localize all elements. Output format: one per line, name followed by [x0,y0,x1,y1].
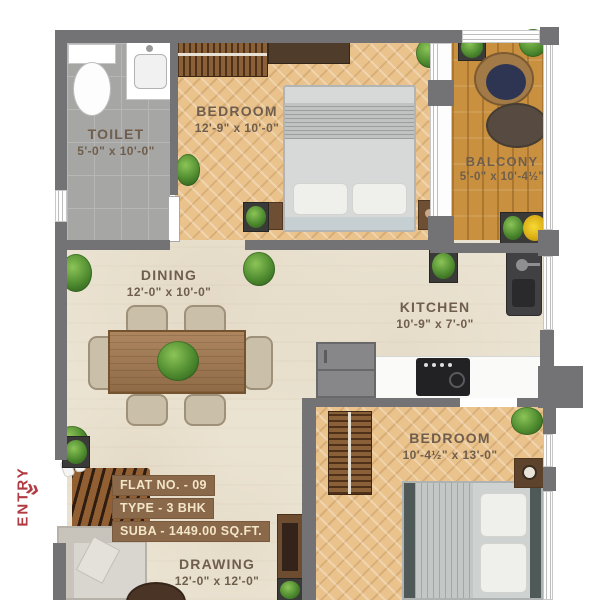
dining-name: DINING [110,267,228,283]
wall [540,330,554,366]
wall [543,467,556,491]
bed-headboard [530,483,541,598]
kitchen-name: KITCHEN [376,299,494,315]
wardrobe [328,411,372,495]
chair-cushion [486,64,526,100]
stove-hob [416,358,470,396]
balcony-name: BALCONY [448,154,556,169]
bedroom1-dims: 12'-9" x 10'-0" [163,121,311,135]
bed-pillow [352,183,407,215]
round-chair [474,52,534,106]
toilet-label: TOILET 5'-0" x 10'-0" [64,126,168,158]
bed-pillow [293,183,348,215]
refrigerator [316,342,376,398]
bed-blanket [415,483,473,598]
sliding-door [430,43,452,243]
wall [245,240,430,250]
balcony-dims: 5'-0" x 10'-4½" [448,171,556,183]
toilet-door [168,196,180,242]
window [55,190,67,222]
washbasin-faucet [146,45,153,52]
flat-info-box: FLAT NO. - 09 TYPE - 3 BHK SUBA - 1449.0… [112,475,270,544]
kitchen-dims: 10'-9" x 7'-0" [376,317,494,331]
toilet-name: TOILET [64,126,168,142]
wall [428,80,454,106]
wall [55,240,170,250]
dining-chair [243,336,273,390]
wall [302,398,460,407]
clock-icon [522,465,537,480]
plant-icon [176,154,200,186]
nightstand [514,458,546,488]
wall [55,30,67,190]
wall [543,408,556,434]
planter-icon [429,249,458,283]
wall-pier [538,366,583,408]
bed [402,481,543,600]
door-opening [460,398,517,407]
bed-footboard [285,217,414,230]
bedroom2-label: BEDROOM 10'-4½" x 13'-0" [378,430,522,462]
wardrobe-divider [348,412,351,494]
washbasin-bowl [134,54,167,89]
toilet-dims: 5'-0" x 10'-0" [64,144,168,158]
floor-plan: TOILET 5'-0" x 10'-0" BEDROOM 12'-9" x 1… [0,0,600,600]
wc-tank [68,44,116,64]
kitchen-label: KITCHEN 10'-9" x 7'-0" [376,299,494,331]
window [543,43,553,230]
flat-number-label: FLAT NO. - 09 [112,475,215,496]
bed-pillow [480,493,527,537]
centerpiece-plant-icon [157,341,199,381]
dining-chair [126,394,168,426]
wall [538,230,559,256]
dining-label: DINING 12'-0" x 10'-0" [110,267,228,299]
bed-pillow [480,543,527,593]
window [543,256,553,330]
bedroom1-label: BEDROOM 12'-9" x 10'-0" [163,103,311,135]
flat-area-label: SUBA - 1449.00 SQ.FT. [112,521,270,542]
wall [540,27,559,45]
window [543,491,553,600]
wall [55,30,462,43]
drawing-label: DRAWING 12'-0" x 12'-0" [153,556,281,588]
wall [302,398,316,600]
wall [428,216,454,246]
dining-dims: 12'-0" x 10'-0" [110,285,228,299]
drawing-name: DRAWING [153,556,281,572]
wall [55,222,67,460]
bedroom2-dims: 10'-4½" x 13'-0" [378,448,522,462]
plant-icon [243,252,275,286]
bedroom2-name: BEDROOM [378,430,522,446]
dining-chair [184,394,226,426]
balcony-label: BALCONY 5'-0" x 10'-4½" [448,154,556,183]
pouf-table [486,103,548,148]
bedroom1-name: BEDROOM [163,103,311,119]
bed-rail [404,483,415,598]
wall [53,543,66,600]
window [462,30,540,43]
window [543,434,553,467]
planter-icon [243,202,269,232]
flat-type-label: TYPE - 3 BHK [112,498,214,519]
drawing-dims: 12'-0" x 12'-0" [153,574,281,588]
wardrobe-divider [177,53,267,56]
kitchen-sink [506,250,542,316]
wc-bowl [73,62,111,116]
washbasin-counter [126,40,174,100]
